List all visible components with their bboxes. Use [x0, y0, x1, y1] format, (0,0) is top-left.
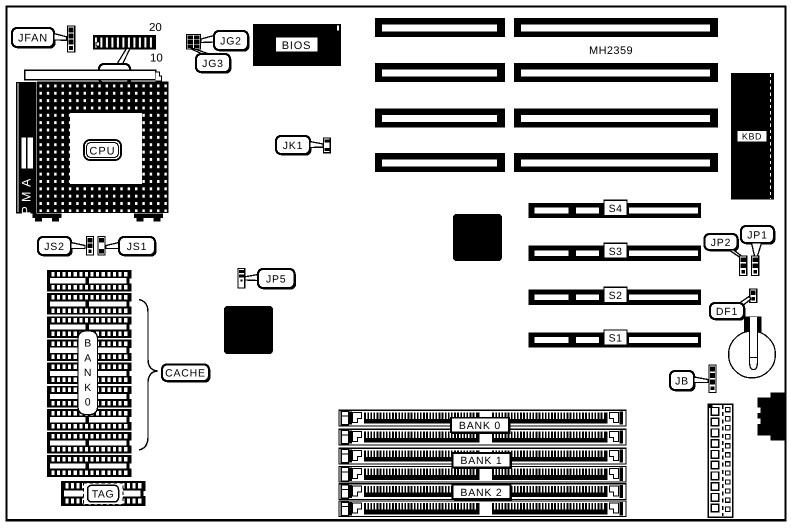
- svg-text:BANK 1: BANK 1: [460, 455, 502, 467]
- svg-text:TAG: TAG: [92, 489, 115, 501]
- svg-text:P: P: [20, 206, 34, 214]
- svg-text:MH2359: MH2359: [589, 45, 633, 57]
- svg-text:10: 10: [150, 53, 163, 65]
- svg-text:0: 0: [85, 397, 91, 409]
- svg-text:JFAN: JFAN: [18, 33, 48, 45]
- svg-text:JS1: JS1: [127, 241, 148, 253]
- svg-text:JP1: JP1: [747, 229, 768, 241]
- svg-text:JG3: JG3: [202, 58, 224, 70]
- svg-text:S3: S3: [609, 246, 623, 258]
- svg-text:JS2: JS2: [44, 241, 65, 253]
- svg-text:JK1: JK1: [283, 140, 304, 152]
- svg-text:S2: S2: [609, 290, 623, 302]
- svg-text:JG2: JG2: [220, 35, 242, 47]
- svg-text:CACHE: CACHE: [165, 368, 206, 380]
- svg-text:DF1: DF1: [716, 306, 738, 318]
- svg-text:CPU: CPU: [89, 146, 115, 158]
- svg-text:BIOS: BIOS: [282, 40, 312, 52]
- svg-text:B: B: [84, 338, 91, 350]
- svg-text:JP5: JP5: [266, 273, 287, 285]
- svg-text:S4: S4: [609, 203, 623, 215]
- svg-text:K: K: [84, 382, 91, 394]
- svg-text:KBD: KBD: [742, 132, 762, 142]
- svg-text:JB: JB: [675, 375, 689, 387]
- svg-text:A: A: [84, 352, 91, 364]
- svg-text:N: N: [84, 367, 92, 379]
- svg-text:BANK 2: BANK 2: [460, 487, 502, 499]
- svg-text:A: A: [20, 178, 34, 187]
- svg-text:S1: S1: [609, 333, 623, 345]
- svg-text:BANK 0: BANK 0: [459, 420, 501, 432]
- svg-text:JP2: JP2: [711, 237, 732, 249]
- svg-text:20: 20: [149, 22, 162, 34]
- svg-text:M: M: [20, 192, 34, 202]
